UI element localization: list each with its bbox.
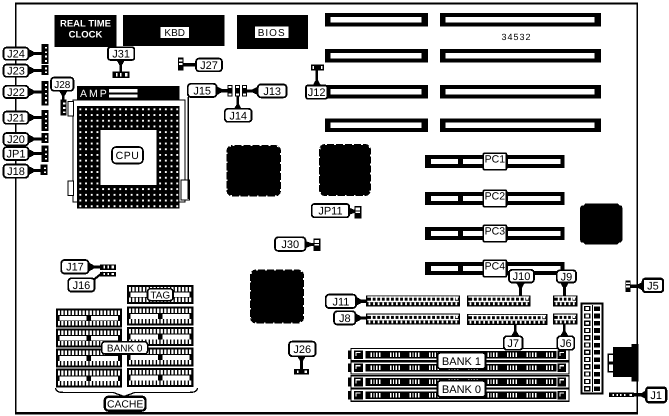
svg-text:J14: J14: [229, 110, 247, 122]
svg-text:BANK 1: BANK 1: [442, 356, 481, 368]
svg-text:J27: J27: [200, 60, 218, 72]
svg-text:J30: J30: [281, 239, 299, 251]
svg-text:CPU: CPU: [116, 150, 140, 162]
svg-text:34532: 34532: [501, 32, 531, 42]
svg-text:J21: J21: [7, 113, 25, 125]
svg-text:PC2: PC2: [485, 190, 506, 202]
svg-text:BANK 0: BANK 0: [107, 344, 143, 355]
svg-text:J17: J17: [66, 262, 84, 274]
svg-text:J5: J5: [647, 280, 659, 292]
svg-text:J23: J23: [7, 66, 25, 78]
svg-text:BIOS: BIOS: [258, 28, 286, 39]
svg-text:J31: J31: [112, 49, 130, 61]
svg-text:J13: J13: [263, 86, 281, 98]
svg-text:J24: J24: [7, 49, 25, 61]
svg-text:JP11: JP11: [318, 206, 342, 218]
svg-text:CLOCK: CLOCK: [69, 30, 103, 41]
svg-text:AMP: AMP: [80, 88, 109, 100]
svg-text:J11: J11: [332, 296, 349, 308]
svg-text:PC4: PC4: [485, 260, 506, 272]
svg-text:J28: J28: [54, 80, 71, 91]
svg-text:J20: J20: [7, 134, 25, 146]
svg-text:J12: J12: [308, 87, 326, 99]
svg-text:CACHE: CACHE: [107, 399, 143, 410]
svg-text:J18: J18: [7, 166, 25, 178]
svg-text:J10: J10: [513, 271, 531, 283]
svg-text:J1: J1: [650, 390, 662, 402]
svg-text:J22: J22: [7, 87, 25, 99]
svg-text:J16: J16: [73, 280, 91, 292]
svg-text:PC3: PC3: [485, 225, 506, 237]
svg-text:REAL TIME: REAL TIME: [60, 19, 111, 30]
svg-text:J7: J7: [507, 338, 519, 350]
svg-text:KBD: KBD: [164, 28, 185, 39]
svg-text:J6: J6: [560, 338, 572, 350]
svg-text:J26: J26: [293, 344, 311, 356]
svg-text:PC1: PC1: [485, 153, 506, 165]
svg-text:J9: J9: [561, 271, 573, 283]
svg-text:J15: J15: [193, 85, 211, 97]
svg-text:J8: J8: [339, 313, 351, 325]
svg-text:BANK 0: BANK 0: [442, 384, 481, 396]
svg-text:TAG: TAG: [150, 290, 170, 301]
svg-text:JP1: JP1: [7, 148, 26, 160]
